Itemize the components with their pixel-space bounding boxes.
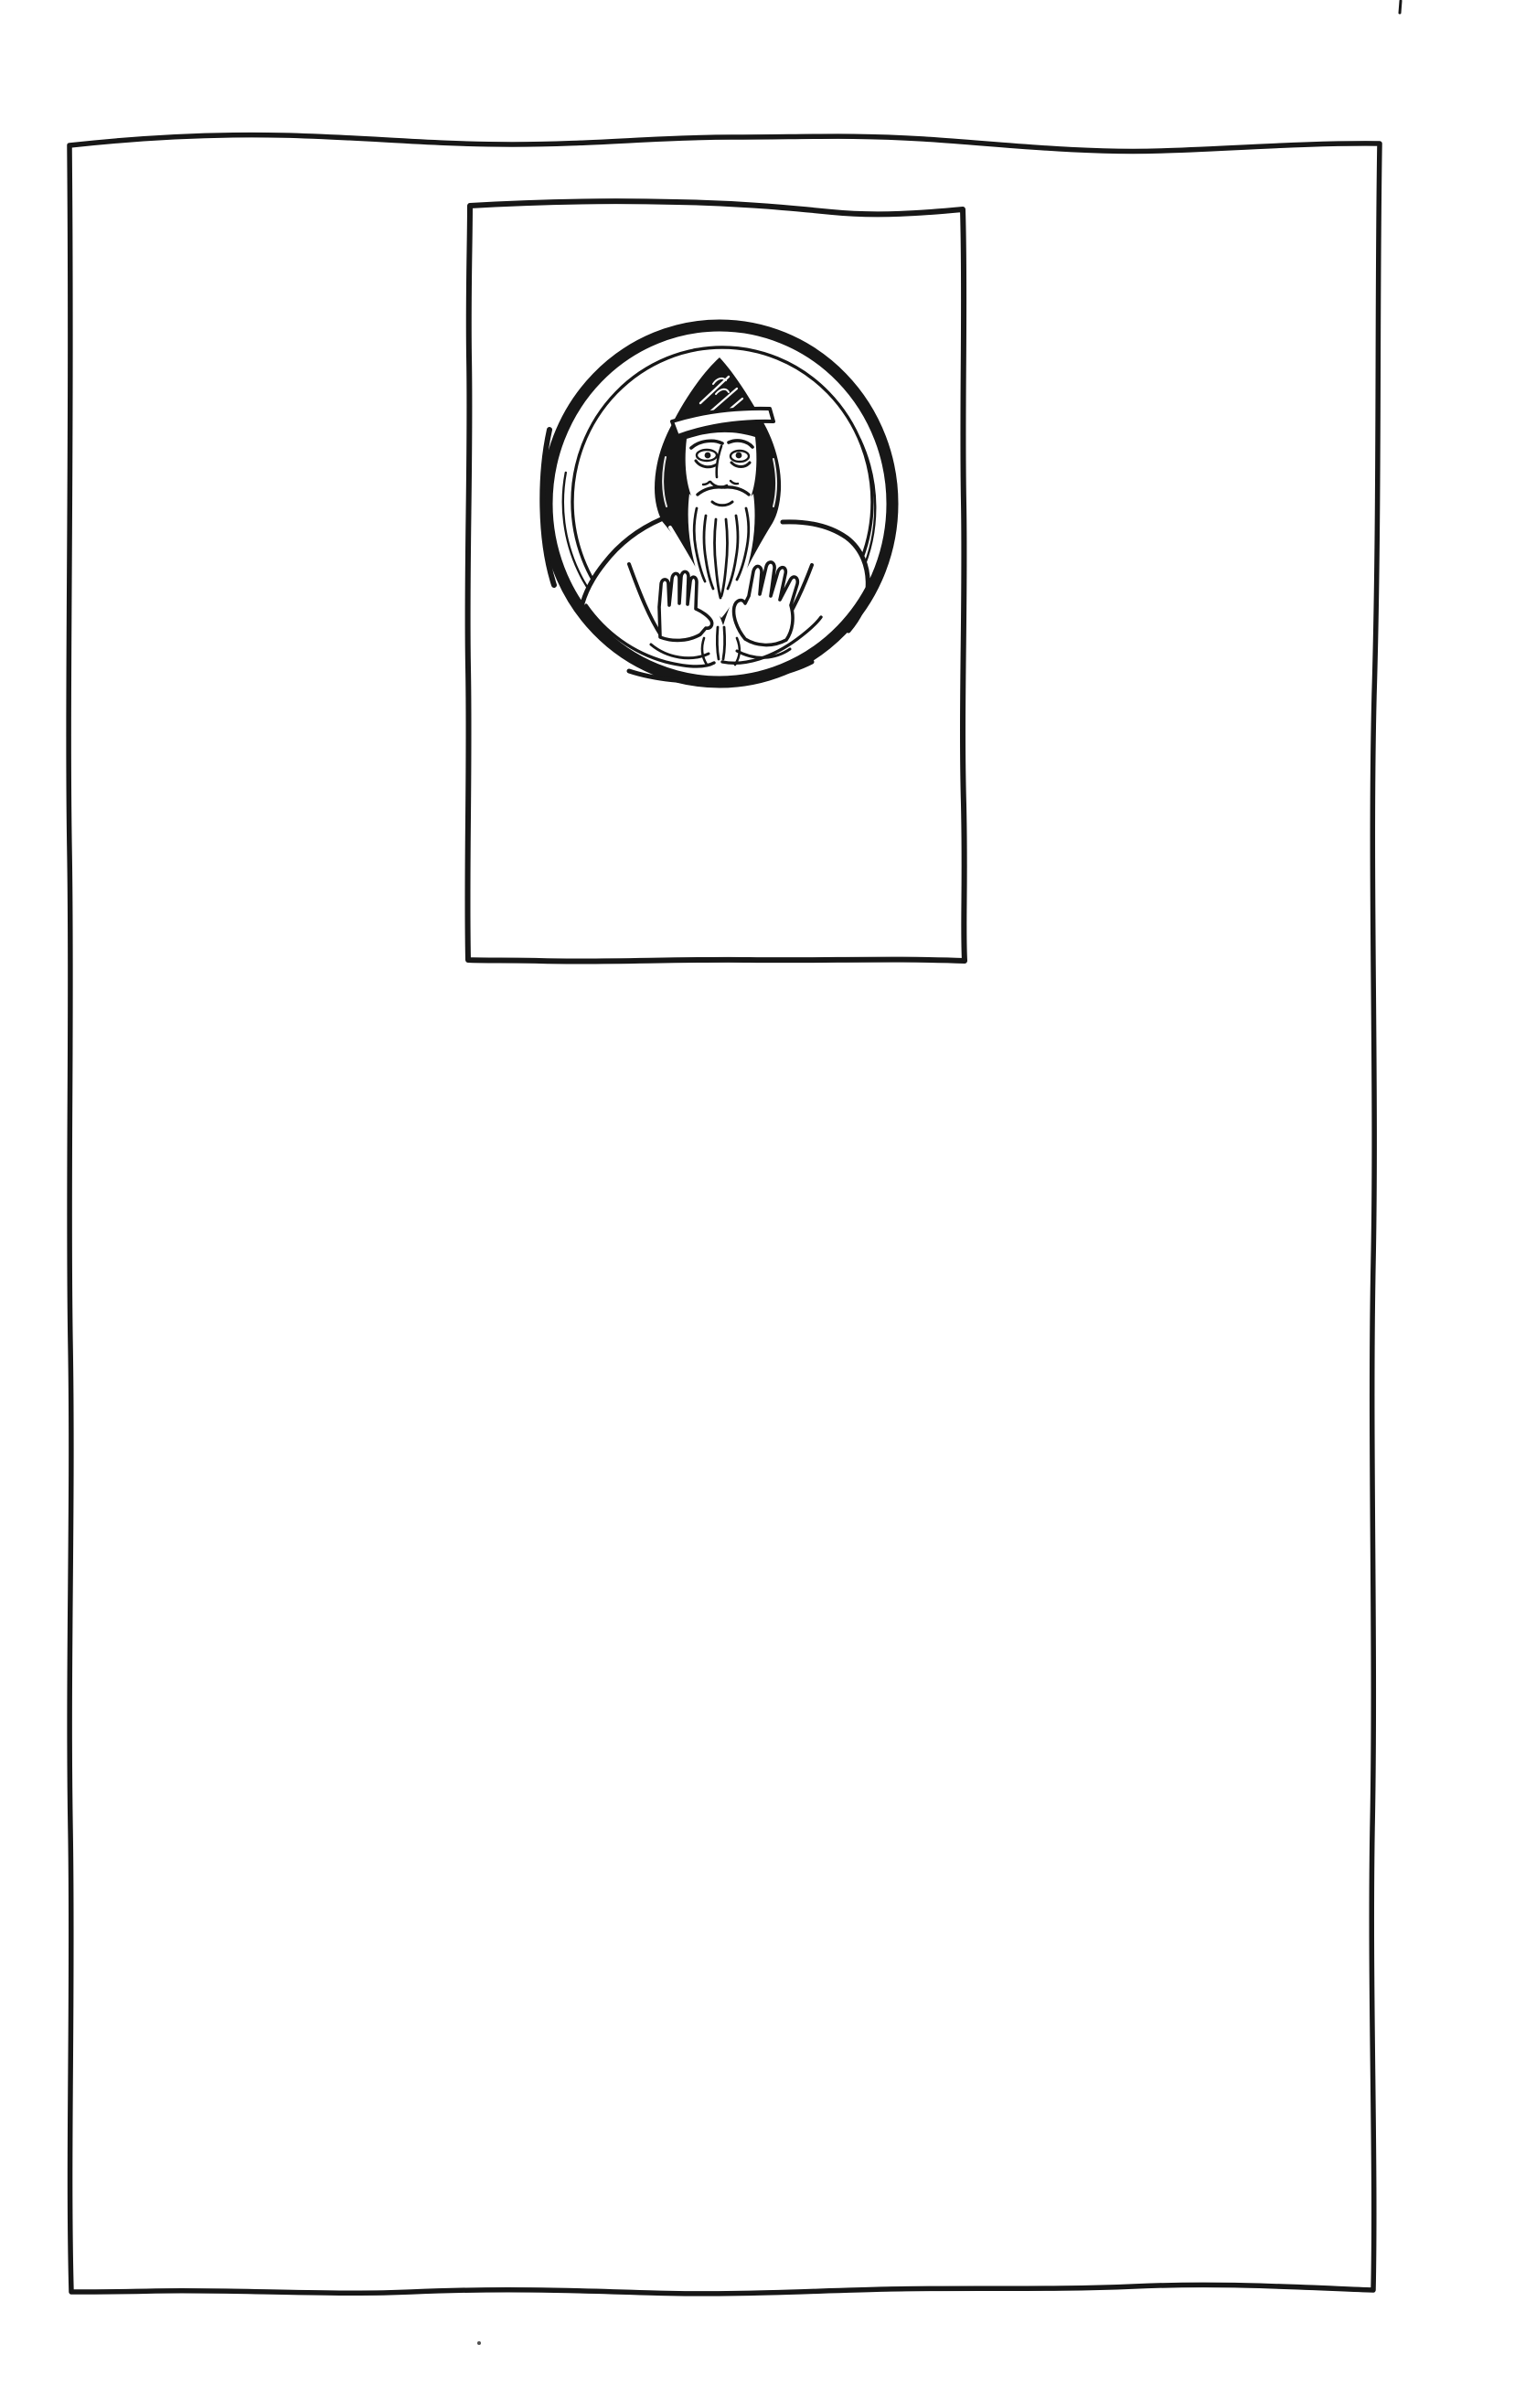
stray-marks — [477, 1, 1401, 2345]
scanned-page — [0, 0, 1536, 2408]
finger-line — [669, 589, 670, 605]
left-pupil — [705, 453, 711, 459]
right-pupil — [736, 453, 742, 459]
medallion — [511, 295, 927, 715]
hooded-man-portrait — [582, 357, 868, 681]
top-edge-tick — [1400, 1, 1401, 13]
tassel-line — [717, 627, 719, 659]
stray-ink-dot — [477, 2341, 481, 2345]
plate-drawing — [0, 0, 1536, 2408]
tassel-line — [723, 627, 725, 659]
